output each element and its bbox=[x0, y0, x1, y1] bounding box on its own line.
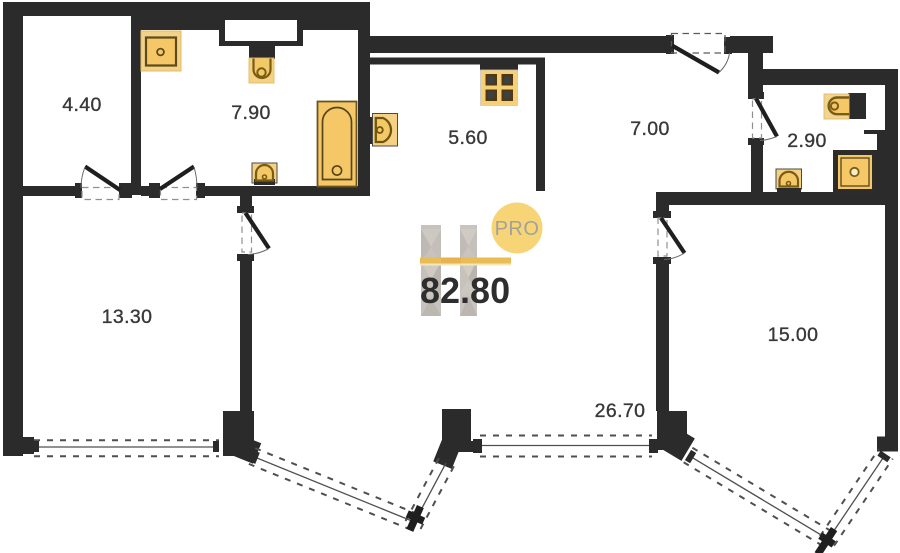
svg-text:2.90: 2.90 bbox=[787, 130, 827, 152]
svg-text:7.90: 7.90 bbox=[231, 102, 271, 124]
svg-text:15.00: 15.00 bbox=[768, 324, 819, 346]
svg-text:82.80: 82.80 bbox=[420, 270, 510, 311]
svg-text:4.40: 4.40 bbox=[62, 94, 102, 116]
svg-text:PRO: PRO bbox=[495, 218, 540, 240]
svg-text:13.30: 13.30 bbox=[102, 306, 153, 328]
svg-text:26.70: 26.70 bbox=[595, 400, 646, 422]
svg-text:7.00: 7.00 bbox=[630, 118, 670, 140]
svg-text:5.60: 5.60 bbox=[448, 127, 488, 149]
